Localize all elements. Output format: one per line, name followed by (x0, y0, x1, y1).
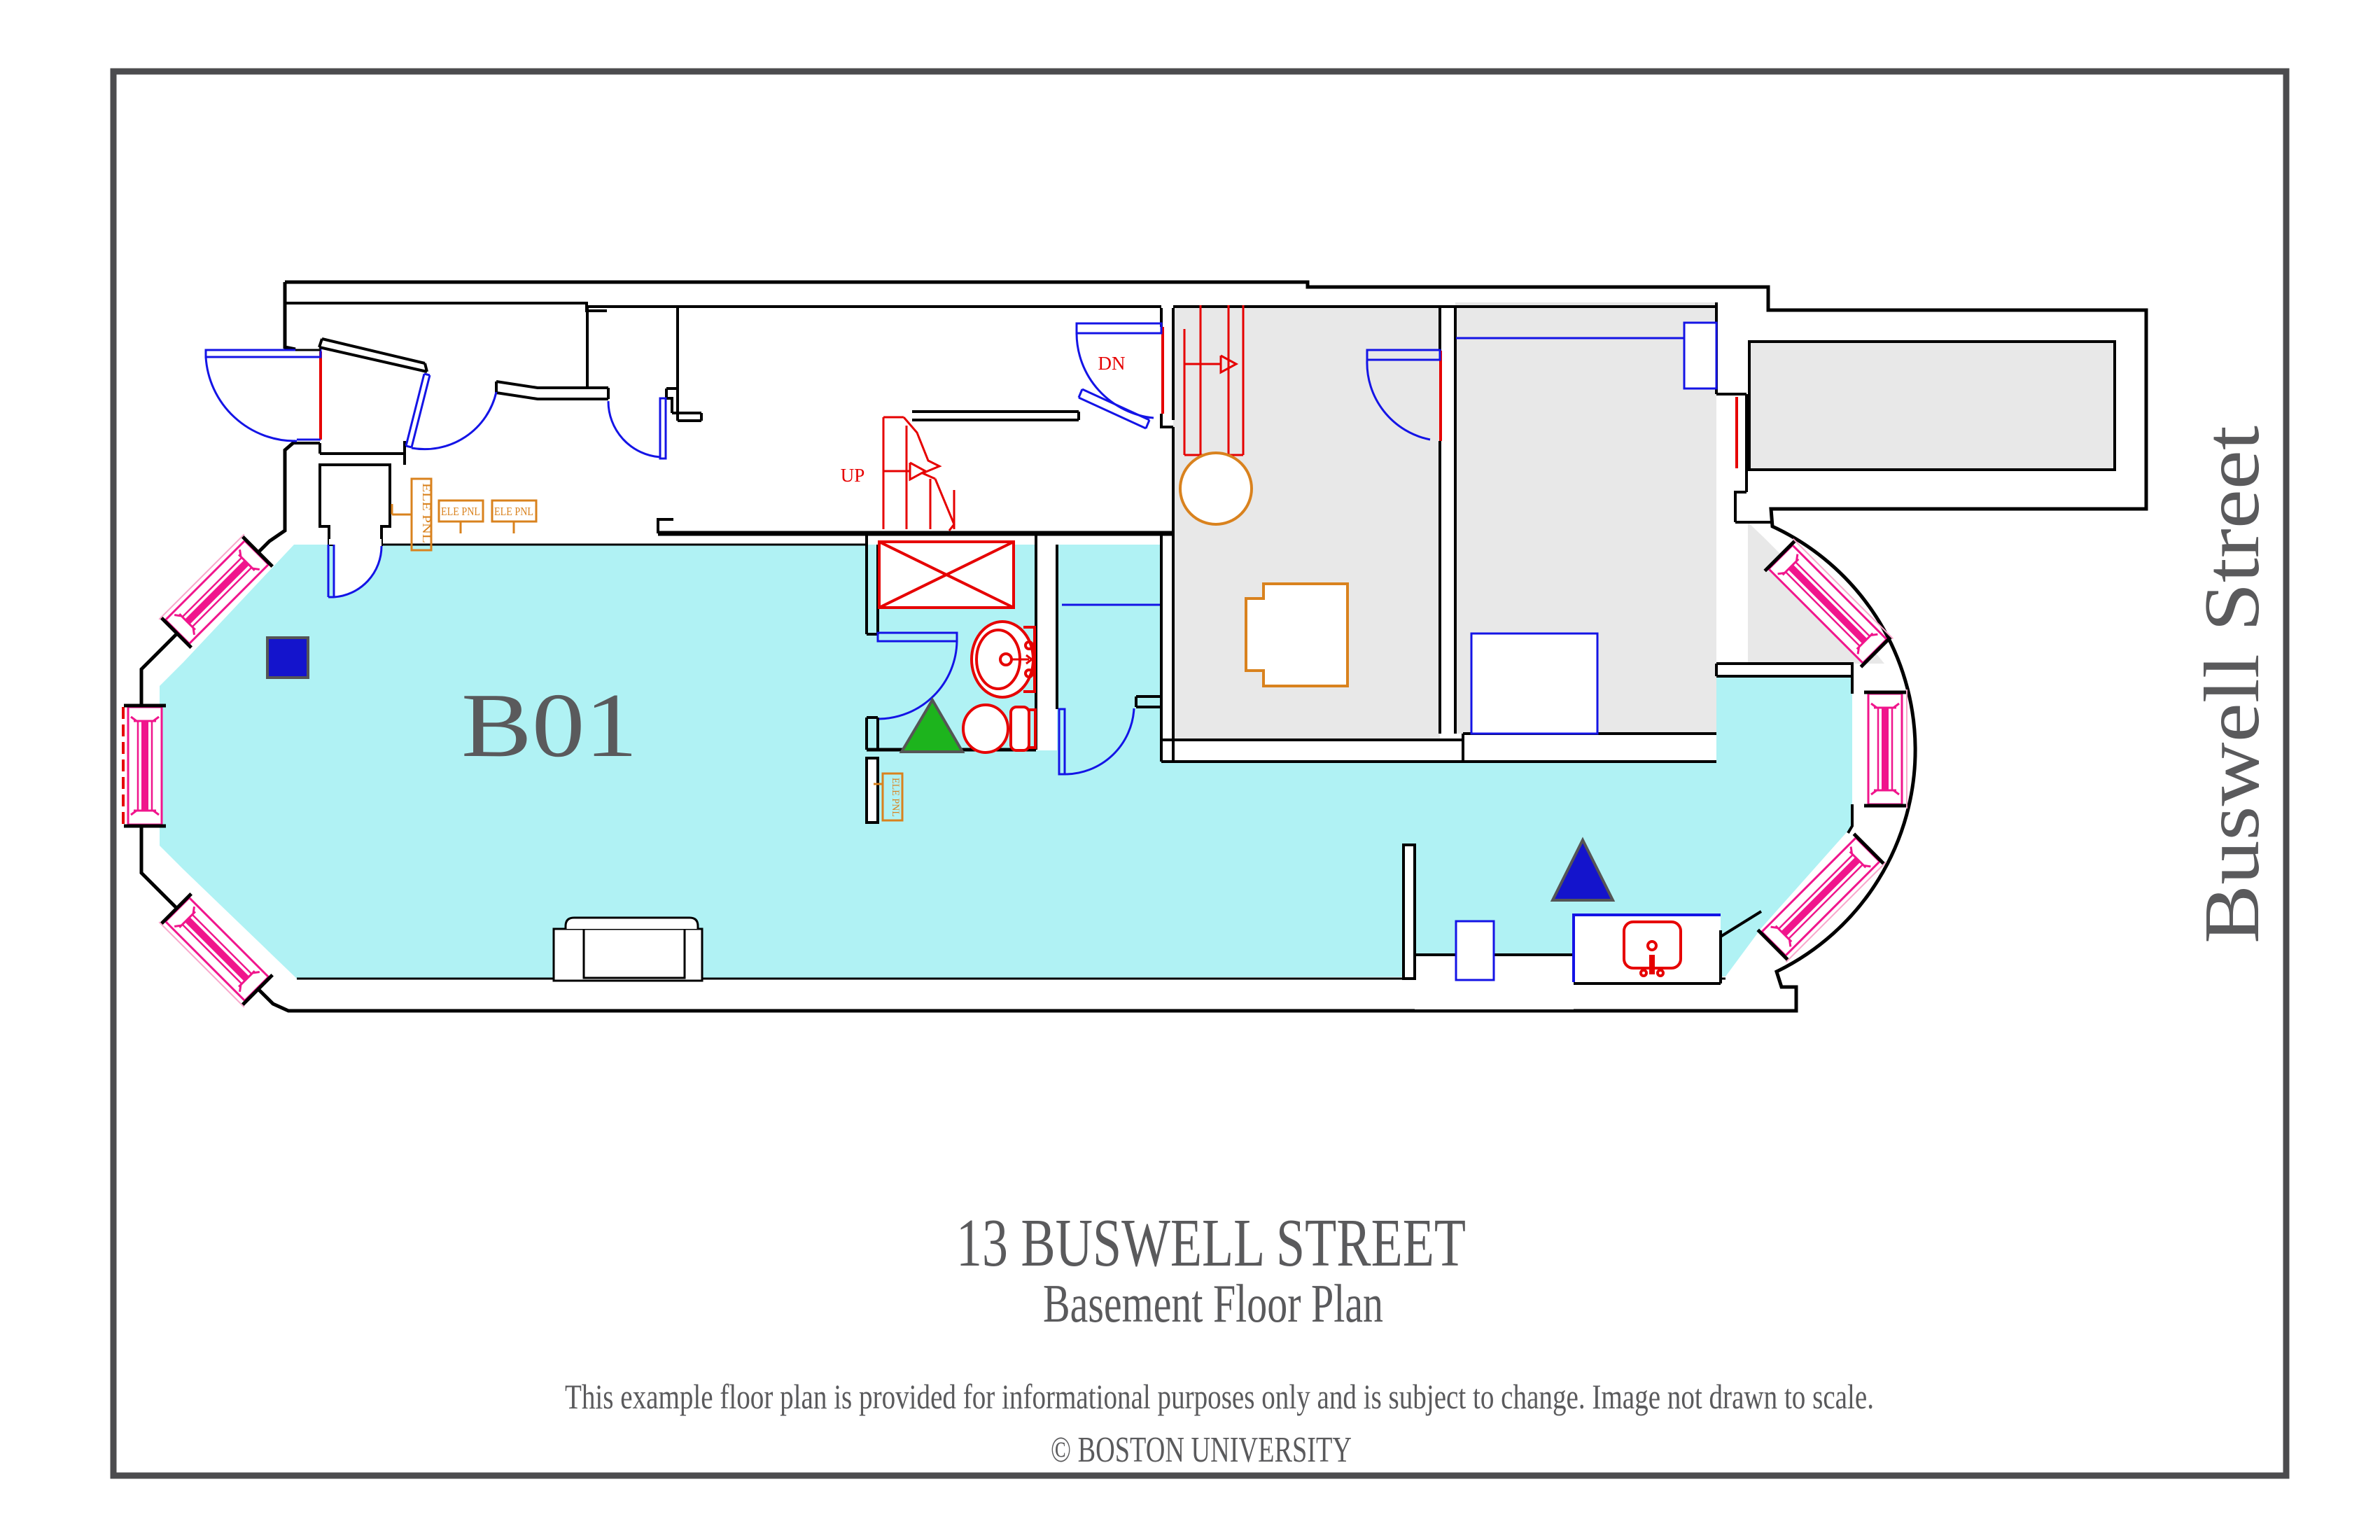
svg-text:ELE PNL: ELE PNL (441, 505, 480, 518)
svg-text:Basement Floor Plan: Basement Floor Plan (1043, 1273, 1383, 1333)
svg-text:© BOSTON UNIVERSITY: © BOSTON UNIVERSITY (1051, 1430, 1352, 1470)
svg-text:ELE PNL: ELE PNL (494, 505, 533, 518)
svg-text:B01: B01 (461, 675, 638, 776)
svg-text:ELE PNL: ELE PNL (890, 778, 901, 817)
svg-text:UP: UP (841, 465, 865, 486)
svg-text:ELE PNL: ELE PNL (420, 483, 433, 543)
svg-text:This example floor plan is pro: This example floor plan is provided for … (565, 1377, 1874, 1416)
svg-text:Buswell Street: Buswell Street (2189, 426, 2276, 944)
svg-text:DN: DN (1098, 353, 1126, 374)
svg-text:13 BUSWELL STREET: 13 BUSWELL STREET (956, 1205, 1466, 1280)
